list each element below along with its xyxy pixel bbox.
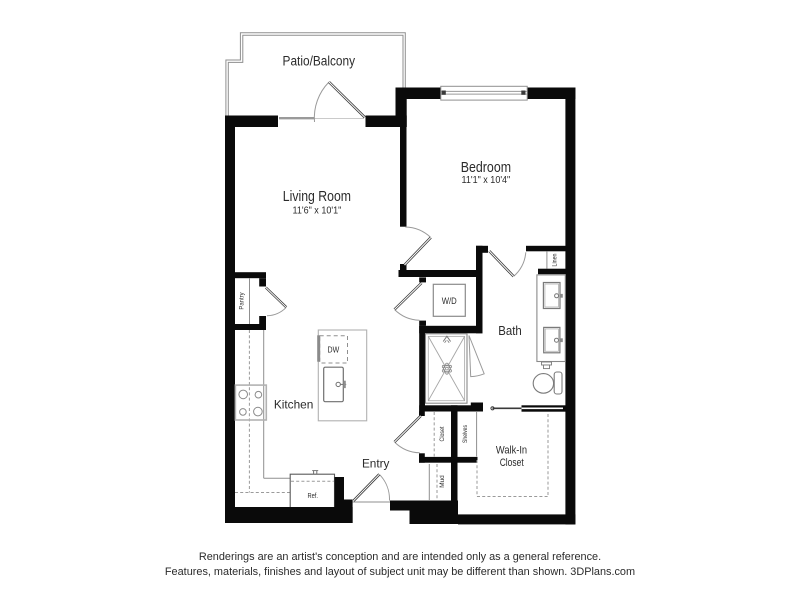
svg-text:Living Room: Living Room xyxy=(283,189,351,205)
svg-text:Ref.: Ref. xyxy=(307,491,318,500)
svg-text:Features, materials, finishes: Features, materials, finishes and layout… xyxy=(165,566,635,578)
svg-text:Entry: Entry xyxy=(362,456,390,470)
svg-text:Closet: Closet xyxy=(500,457,524,469)
svg-text:Shelves: Shelves xyxy=(462,424,469,443)
svg-text:Kitchen: Kitchen xyxy=(274,398,314,412)
svg-text:Closet: Closet xyxy=(439,426,446,441)
svg-text:Linen: Linen xyxy=(552,253,559,266)
svg-text:Bath: Bath xyxy=(498,324,522,338)
svg-text:Patio/Balcony: Patio/Balcony xyxy=(283,53,356,68)
svg-text:Walk-In: Walk-In xyxy=(496,444,527,456)
svg-text:11'6" x 10'1": 11'6" x 10'1" xyxy=(293,206,342,217)
svg-text:W/D: W/D xyxy=(442,296,457,306)
svg-text:Renderings are an artist's con: Renderings are an artist's conception an… xyxy=(199,551,601,563)
svg-text:Pantry: Pantry xyxy=(239,292,246,310)
svg-text:DW: DW xyxy=(328,345,340,355)
svg-text:Bedroom: Bedroom xyxy=(461,160,511,176)
svg-text:11'1" x 10'4": 11'1" x 10'4" xyxy=(462,175,511,186)
svg-text:Mud: Mud xyxy=(439,475,446,488)
